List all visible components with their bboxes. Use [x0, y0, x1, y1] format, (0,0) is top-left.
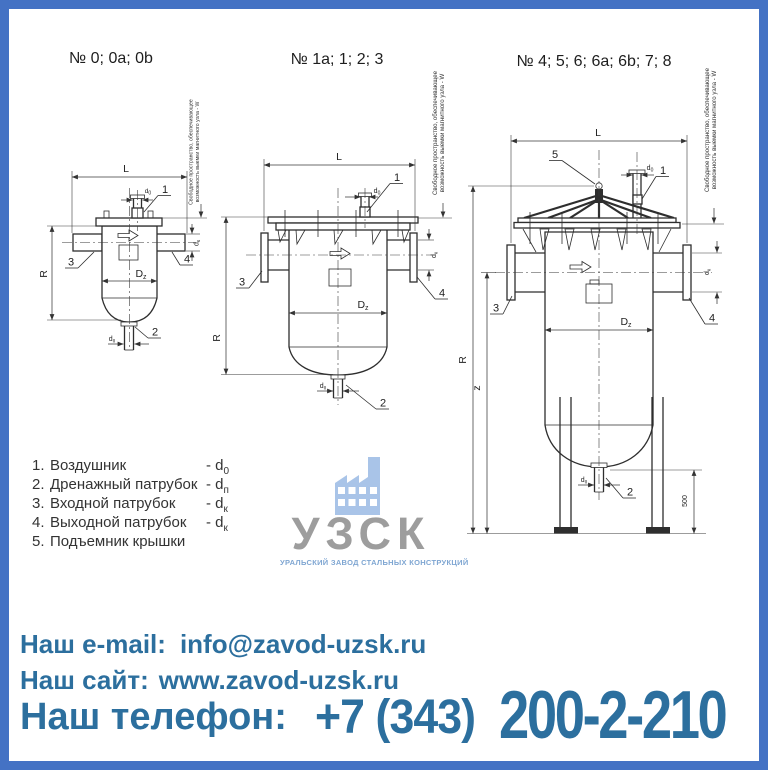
callout-5: 5 [552, 149, 558, 161]
dim-label-dp: dп [320, 383, 327, 392]
flange-bolt [104, 211, 109, 218]
legend-item: 2. Дренажный патрубок - dп [32, 475, 229, 494]
vessel-medium [246, 188, 436, 405]
drawing-title: № 0; 0а; 0b [69, 50, 153, 67]
legend-dim-main: - d [206, 514, 224, 531]
legend-item-dim: - dк [206, 494, 228, 513]
logo-tagline: УРАЛЬСКИЙ ЗАВОД СТАЛЬНЫХ КОНСТРУКЦИЙ [280, 558, 442, 567]
legend-item-dim: - dк [206, 513, 228, 532]
legend-item-number: 5. [32, 532, 50, 551]
dim-label-leg-height: 500 [682, 495, 689, 507]
legend-dim-main: - d [206, 495, 224, 512]
inlet-nozzle [261, 233, 289, 282]
cover-flange-lower [514, 223, 680, 229]
dim-label-dk: dк [194, 239, 203, 246]
legend-item-number: 4. [32, 513, 50, 532]
legend-item-label: Входной патрубок [50, 494, 206, 513]
note-line1: Свободное пространство, обеспечивающее [189, 99, 195, 205]
callout-4: 4 [184, 254, 190, 266]
dim-label-R: R [38, 270, 50, 278]
legend-item: 5. Подъемник крышки [32, 532, 229, 551]
cover-flange [268, 217, 418, 223]
vessel-small [62, 188, 196, 350]
drawing-filter-small: № 0; 0а; 0b [38, 50, 207, 350]
dim-label-L: L [336, 151, 342, 163]
callout-3: 3 [68, 257, 74, 269]
legend-item-number: 2. [32, 475, 50, 494]
callout-4: 4 [709, 313, 715, 325]
legend-item-dim: - dп [206, 475, 229, 494]
legend-item: 4. Выходной патрубок - dк [32, 513, 229, 532]
note-line1: Свободное пространство, обеспечивающее [704, 67, 711, 192]
free-space-note: Свободное пространство, обеспечивающее в… [162, 99, 207, 218]
callout-3: 3 [239, 277, 245, 289]
drain-pipe [121, 322, 137, 350]
dim-label-R: R [211, 334, 223, 342]
legend-item: 1. Воздушник - d0 [32, 456, 229, 475]
dimensions-large: L R z Dz d0 dк dп 500 [457, 127, 722, 534]
legend-item-label: Воздушник [50, 456, 206, 475]
legend-item-number: 1. [32, 456, 50, 475]
parts-legend: 1. Воздушник - d0 2. Дренажный патрубок … [32, 456, 229, 551]
callout-4: 4 [439, 288, 445, 300]
drawing-filter-medium: № 1а; 1; 2; 3 [211, 51, 452, 410]
phone-prefix: +7 (343) [315, 696, 475, 744]
callout-2: 2 [380, 398, 386, 410]
logo-name: УЗСК [280, 508, 442, 560]
legend-dim-main: - d [206, 457, 224, 474]
legend-item-dim: - d0 [206, 456, 229, 475]
legend-item-number: 3. [32, 494, 50, 513]
phone-number: 200-2-210 [499, 688, 725, 744]
legend-item: 3. Входной патрубок - dк [32, 494, 229, 513]
dim-label-d0: d0 [374, 188, 381, 197]
free-space-note: Свободное пространство, обеспечивающее в… [418, 70, 452, 218]
legend-dim-main: - d [206, 476, 224, 493]
page: .ol { stroke:#2e2e2e; stroke-width:1.3; … [0, 0, 768, 770]
dim-label-dp: dп [109, 336, 116, 345]
outlet-nozzle [387, 233, 417, 282]
dim-label-R: R [457, 356, 469, 364]
dim-label-d0: d0 [145, 188, 152, 197]
callout-1: 1 [394, 172, 400, 184]
email-value: info@zavod-uzsk.ru [180, 629, 426, 659]
drawing-filter-large: № 4; 5; 6; 6а; 6b; 7; 8 [457, 53, 724, 534]
callout-1: 1 [162, 184, 168, 196]
legend-dim-sub: к [224, 523, 228, 534]
dim-label-dp: dп [581, 477, 588, 486]
legend-item-label: Подъемник крышки [50, 532, 206, 551]
drawing-title: № 1а; 1; 2; 3 [291, 51, 384, 68]
cover-flange [518, 218, 676, 223]
dim-label-z: z [471, 385, 483, 390]
legend-item-label: Выходной патрубок [50, 513, 206, 532]
company-logo: УЗСК УРАЛЬСКИЙ ЗАВОД СТАЛЬНЫХ КОНСТРУКЦИ… [280, 450, 442, 575]
dim-label-d0: d0 [647, 165, 654, 174]
callout-2: 2 [627, 487, 633, 499]
email-row: Наш e-mail:info@zavod-uzsk.ru [20, 629, 426, 660]
cover-flange [96, 218, 162, 226]
note-line1: Свободное пространство, обеспечивающее [432, 70, 439, 195]
note-line2: возможность выемки магнитного узла - W [439, 74, 446, 193]
note-line2: возможность выемки магнитного узла - W [711, 71, 718, 190]
cover-flange-lower [276, 223, 410, 230]
callout-1: 1 [660, 165, 666, 177]
email-label: Наш e-mail: [20, 629, 166, 659]
dim-label-dk: dк [704, 268, 713, 275]
callout-3: 3 [493, 303, 499, 315]
vessel-large [467, 150, 712, 534]
drawing-title: № 4; 5; 6; 6а; 6b; 7; 8 [516, 53, 671, 70]
phone-label: Наш телефон: [20, 698, 287, 744]
legend-item-label: Дренажный патрубок [50, 475, 206, 494]
free-space-note: Свободное пространство, обеспечивающее в… [682, 67, 724, 224]
dim-label-L: L [123, 163, 129, 175]
phone-row: Наш телефон: +7 (343) 200-2-210 [20, 688, 768, 744]
dim-label-dk: dк [431, 251, 440, 258]
dim-label-L: L [595, 127, 601, 139]
note-line2: возможность выемки магнитного узла - W [195, 101, 201, 202]
callout-2: 2 [152, 327, 158, 339]
flange-bolt [148, 211, 153, 218]
